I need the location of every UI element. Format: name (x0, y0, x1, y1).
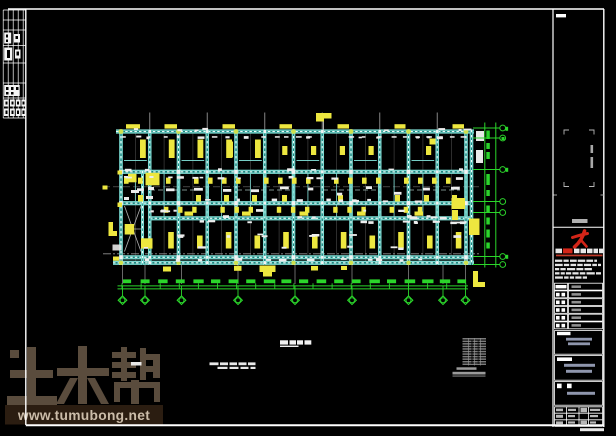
svg-text:www.tumubong.net: www.tumubong.net (17, 408, 150, 423)
